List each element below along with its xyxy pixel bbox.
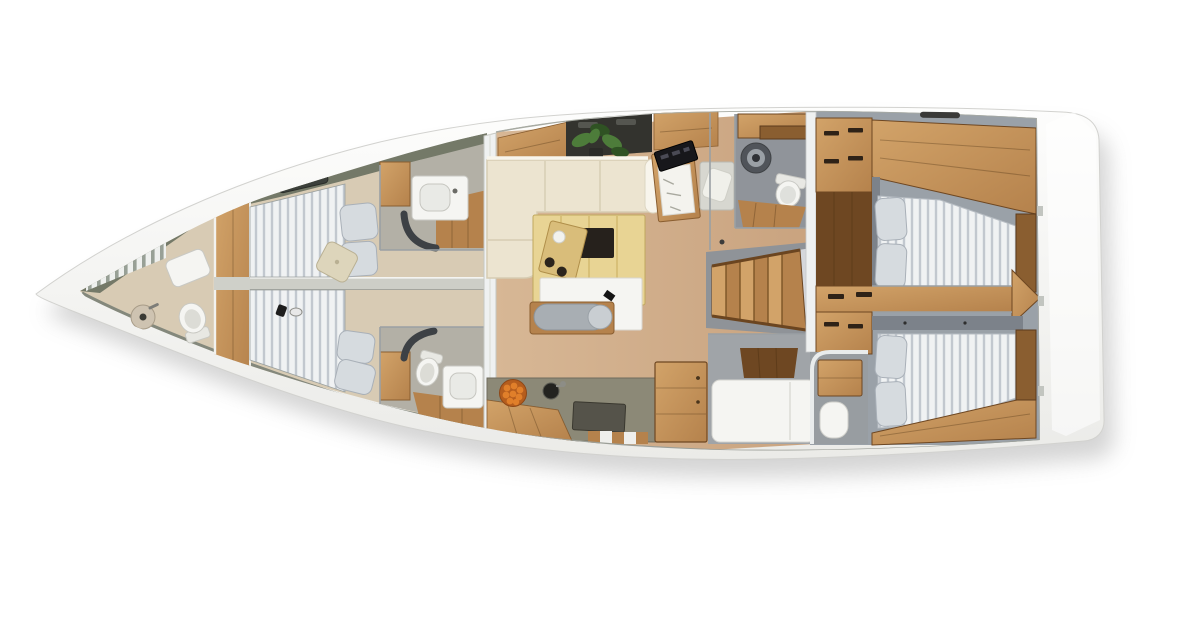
centerline-divider (250, 277, 487, 290)
mid-wood-floor (740, 348, 798, 378)
head-shelf-upper (760, 126, 810, 139)
chart (658, 164, 695, 215)
transom-hinge (1038, 386, 1044, 396)
mid-berth (712, 380, 816, 442)
wardrobe (816, 118, 872, 192)
berth-side-strip (1016, 330, 1036, 400)
aft-cabin-port (816, 118, 1036, 292)
transom-hinge (1037, 206, 1043, 216)
aft-head-port (735, 114, 812, 228)
aft-head-starboard (810, 352, 868, 444)
transom-sheen (1046, 112, 1100, 436)
entry-floor (816, 192, 872, 286)
washbasin-counter (412, 176, 468, 220)
mid-cabin (708, 334, 820, 444)
head-locker (380, 162, 410, 206)
wardrobe (816, 312, 872, 354)
aft-bulkhead (806, 112, 816, 352)
bench-seat (530, 302, 614, 334)
washing-machine (741, 143, 771, 173)
floor-fitting (720, 240, 725, 245)
deck-hatch-aft (920, 112, 960, 119)
aft-washbasin (820, 402, 848, 438)
galley-tall-cabinet (655, 362, 707, 442)
headboard (872, 316, 1023, 330)
pillow-gray (875, 197, 908, 241)
pillow-gray (875, 381, 907, 427)
transom-hinge (1038, 296, 1044, 306)
washbasin-counter (443, 366, 483, 408)
personal-item-light (290, 308, 302, 316)
yacht-floorplan-svg (0, 0, 1200, 623)
pillow-gray (339, 202, 379, 242)
pillow-gray (336, 330, 376, 365)
stove (572, 402, 625, 433)
pillow-gray (875, 335, 908, 379)
interior (78, 110, 1042, 451)
nav-seat (700, 162, 734, 210)
pillow-gray (875, 243, 907, 289)
companionway-stairs (706, 242, 812, 336)
fruit-bowl (500, 380, 527, 407)
